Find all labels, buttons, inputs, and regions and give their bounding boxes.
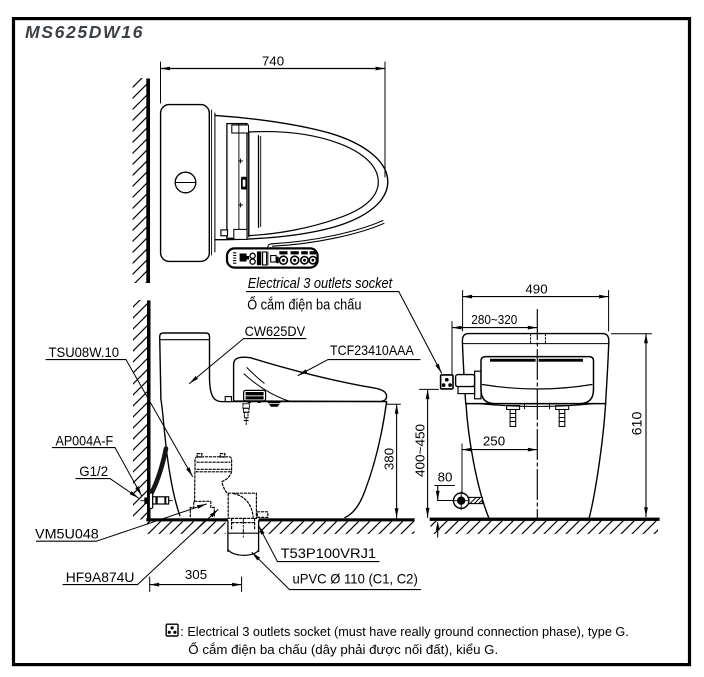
svg-text:: Electrical 3 outlets socket: : Electrical 3 outlets socket (must have…: [180, 625, 629, 639]
svg-text:80: 80: [438, 470, 453, 485]
svg-text:740: 740: [262, 53, 284, 68]
svg-text:400~450: 400~450: [413, 424, 428, 477]
svg-text:Ổ cắm điện ba chấu: Ổ cắm điện ba chấu: [247, 295, 361, 313]
svg-text:280~320: 280~320: [471, 312, 517, 327]
svg-text:VM5U048: VM5U048: [35, 526, 99, 542]
svg-text:G1/2: G1/2: [79, 463, 108, 479]
svg-text:TCF23410AAA: TCF23410AAA: [330, 342, 414, 358]
svg-text:Ổ cắm điện ba chấu (dây phải đ: Ổ cắm điện ba chấu (dây phải được nối đấ…: [188, 642, 498, 657]
svg-text:490: 490: [525, 281, 547, 296]
svg-text:T53P100VRJ1: T53P100VRJ1: [281, 545, 377, 561]
svg-text:HF9A874U: HF9A874U: [66, 569, 135, 585]
svg-text:AP004A-F: AP004A-F: [56, 432, 114, 448]
svg-text:Electrical 3 outlets socket: Electrical 3 outlets socket: [248, 276, 393, 292]
svg-text:uPVC Ø 110 (C1, C2): uPVC Ø 110 (C1, C2): [293, 570, 418, 586]
svg-text:305: 305: [185, 567, 207, 582]
svg-text:250: 250: [483, 434, 505, 449]
svg-text:TSU08W.10: TSU08W.10: [49, 344, 120, 360]
svg-text:MS625DW16: MS625DW16: [25, 22, 144, 42]
svg-text:CW625DV: CW625DV: [245, 323, 306, 339]
svg-text:380: 380: [381, 448, 396, 470]
svg-text:610: 610: [630, 412, 646, 436]
